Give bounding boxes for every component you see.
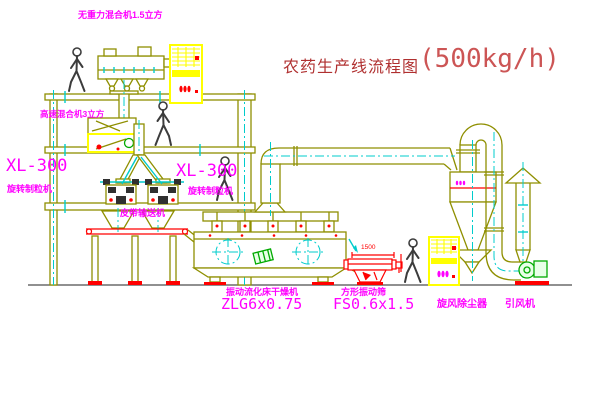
control-cabinet-upper bbox=[170, 45, 202, 103]
worker-figure-sieve bbox=[405, 239, 421, 282]
label-sieve-model: FS0.6x1.5 bbox=[333, 297, 414, 312]
label-dryer-model: ZLG6x0.75 bbox=[221, 297, 302, 312]
label-granulator-left: 旋转制粒机 bbox=[7, 185, 52, 194]
label-granulator-right: 旋转制粒机 bbox=[188, 187, 233, 196]
support-legs bbox=[88, 236, 180, 285]
label-cyclone: 旋风除尘器 bbox=[437, 300, 487, 310]
label-belt-conveyor: 皮带输送机 bbox=[120, 209, 165, 218]
fluid-bed-dryer bbox=[194, 212, 360, 285]
y-branch-pipe bbox=[116, 155, 170, 184]
label-xl300-left: XL-300 bbox=[6, 158, 67, 175]
belt-conveyor bbox=[86, 229, 198, 242]
label-top-mixer: 无重力混合机1.5立方 bbox=[78, 11, 163, 20]
page-title: 农药生产线流程图 (500kg/h) bbox=[283, 44, 560, 77]
flow-diagram: 无重力混合机1.5立方 农药生产线流程图 (500kg/h) 高速混合机3立方 … bbox=[0, 0, 600, 403]
title-chinese: 农药生产线流程图 bbox=[283, 44, 419, 77]
high-speed-mixer bbox=[88, 118, 144, 158]
label-fan: 引风机 bbox=[505, 300, 535, 310]
control-cabinet-lower bbox=[429, 237, 459, 285]
label-xl300-right: XL-300 bbox=[176, 163, 237, 180]
exhaust-duct bbox=[255, 142, 457, 216]
title-capacity: (500kg/h) bbox=[419, 44, 560, 74]
worker-figure-floor2 bbox=[156, 102, 172, 145]
label-sieve-dimension: 1500 bbox=[361, 244, 375, 251]
induced-draft-fan bbox=[515, 261, 549, 285]
label-high-speed-mixer: 高速混合机3立方 bbox=[40, 110, 104, 119]
worker-figure-roof bbox=[69, 48, 85, 91]
